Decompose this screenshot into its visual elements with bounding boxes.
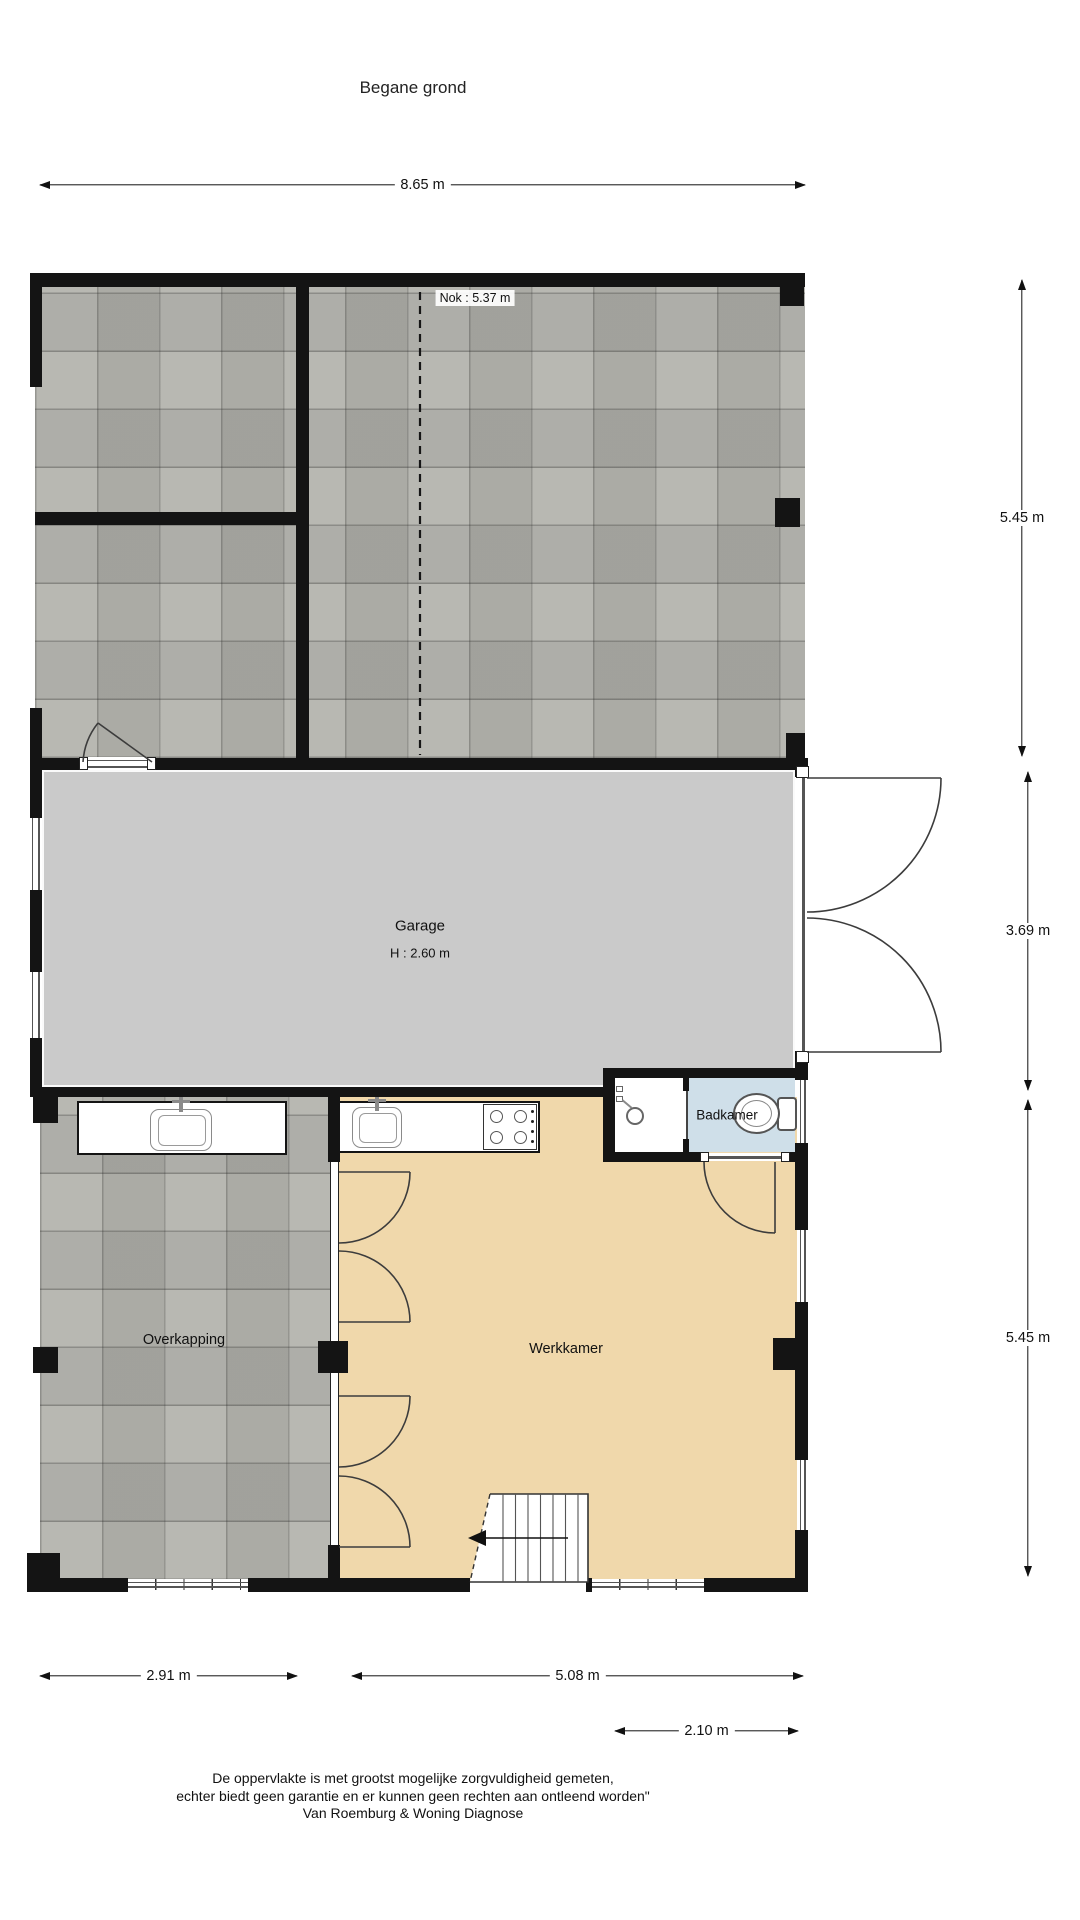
stove-burner <box>514 1131 527 1144</box>
garage-door-swing-top <box>807 778 941 912</box>
door-frame <box>796 766 809 778</box>
floor-plan-page: { "title": "Begane grond", "rooms": { "g… <box>0 0 1080 1920</box>
disclaimer: De oppervlakte is met grootst mogelijke … <box>176 1770 650 1823</box>
disclaimer-line-3: Van Roemburg & Woning Diagnose <box>176 1805 650 1823</box>
glass-wall <box>330 1373 339 1545</box>
window <box>29 972 42 1038</box>
tap-icon <box>172 1100 190 1103</box>
wall <box>603 1078 615 1162</box>
tap-icon <box>368 1099 386 1102</box>
room-height-garage: H : 2.60 m <box>390 946 450 961</box>
wall <box>30 1087 610 1097</box>
wall <box>35 512 309 525</box>
stove-burner <box>514 1110 527 1123</box>
wall <box>683 1078 689 1091</box>
stove-burner <box>490 1131 503 1144</box>
wall <box>615 1152 700 1162</box>
wall <box>773 1338 798 1370</box>
wall <box>795 1162 808 1230</box>
window <box>797 1460 808 1530</box>
room-label-garage: Garage <box>395 918 445 935</box>
wall <box>30 287 42 387</box>
wall <box>775 498 800 527</box>
wall <box>248 1578 470 1592</box>
shower-head-icon <box>626 1107 644 1125</box>
wall <box>30 770 42 818</box>
dimension-bottom-left-label: 2.91 m <box>140 1668 196 1684</box>
window <box>797 1080 808 1143</box>
dimension-right-upper-label: 5.45 m <box>994 510 1050 526</box>
wall <box>27 1553 60 1592</box>
dimension-bottom-middle-label: 5.08 m <box>549 1668 605 1684</box>
disclaimer-line-2: echter biedt geen garantie en er kunnen … <box>176 1788 650 1806</box>
door-opening <box>83 757 152 770</box>
post <box>33 1347 58 1373</box>
wall <box>328 1545 340 1592</box>
dimension-right-upper: 5.45 m <box>1015 280 1029 756</box>
wall <box>30 758 83 770</box>
stove-knob <box>531 1140 534 1143</box>
wall <box>603 1068 805 1078</box>
sliding-door <box>709 1153 781 1161</box>
dimension-top-label: 8.65 m <box>394 177 450 193</box>
door-frame <box>700 1152 709 1162</box>
garage-door-swing-bottom <box>807 918 941 1052</box>
garage-door-track <box>799 778 807 1051</box>
dimension-top: 8.65 m <box>40 178 805 192</box>
dimension-right-middle-label: 3.69 m <box>1000 923 1056 939</box>
sink-overkapping-basin <box>158 1115 206 1146</box>
wall <box>704 1578 808 1592</box>
post <box>318 1341 348 1373</box>
ridge-height-label: Nok : 5.37 m <box>436 290 515 306</box>
wall <box>795 1068 808 1080</box>
stove-knob <box>531 1110 534 1113</box>
stove-knob <box>531 1130 534 1133</box>
post <box>33 1097 58 1123</box>
dimension-right-lower: 5.45 m <box>1021 1100 1035 1576</box>
door-frame <box>79 757 88 770</box>
shower-control-icon <box>616 1086 623 1092</box>
window <box>797 1230 808 1302</box>
dimension-right-middle: 3.69 m <box>1021 772 1035 1090</box>
wall <box>30 890 42 972</box>
wall <box>795 1302 808 1460</box>
werkkamer-floor <box>335 1097 800 1582</box>
door-frame <box>781 1152 790 1162</box>
door-frame <box>147 757 156 770</box>
window <box>128 1579 248 1590</box>
room-label-werkkamer: Werkkamer <box>529 1341 603 1357</box>
room-label-overkapping: Overkapping <box>143 1332 225 1348</box>
disclaimer-line-1: De oppervlakte is met grootst mogelijke … <box>176 1770 650 1788</box>
wall <box>30 708 42 760</box>
toilet-icon <box>777 1097 797 1131</box>
door-frame <box>796 1051 809 1063</box>
dimension-bottom-right: 2.10 m <box>615 1724 798 1738</box>
stove-burner <box>490 1110 503 1123</box>
page-title: Begane grond <box>360 78 467 98</box>
wall <box>30 273 805 287</box>
wall <box>780 273 804 306</box>
sink-werkkamer-basin <box>359 1113 397 1143</box>
dimension-right-lower-label: 5.45 m <box>1000 1330 1056 1346</box>
glass-wall <box>330 1162 339 1341</box>
window <box>29 818 42 890</box>
stove-knob <box>531 1120 534 1123</box>
room-label-badkamer: Badkamer <box>696 1108 758 1123</box>
wall <box>328 1092 340 1162</box>
dimension-bottom-middle: 5.08 m <box>352 1669 803 1683</box>
wall <box>795 1143 808 1162</box>
wall <box>683 1139 689 1152</box>
dimension-bottom-right-label: 2.10 m <box>678 1723 734 1739</box>
dimension-bottom-left: 2.91 m <box>40 1669 297 1683</box>
window <box>592 1579 704 1590</box>
wall <box>152 758 786 770</box>
